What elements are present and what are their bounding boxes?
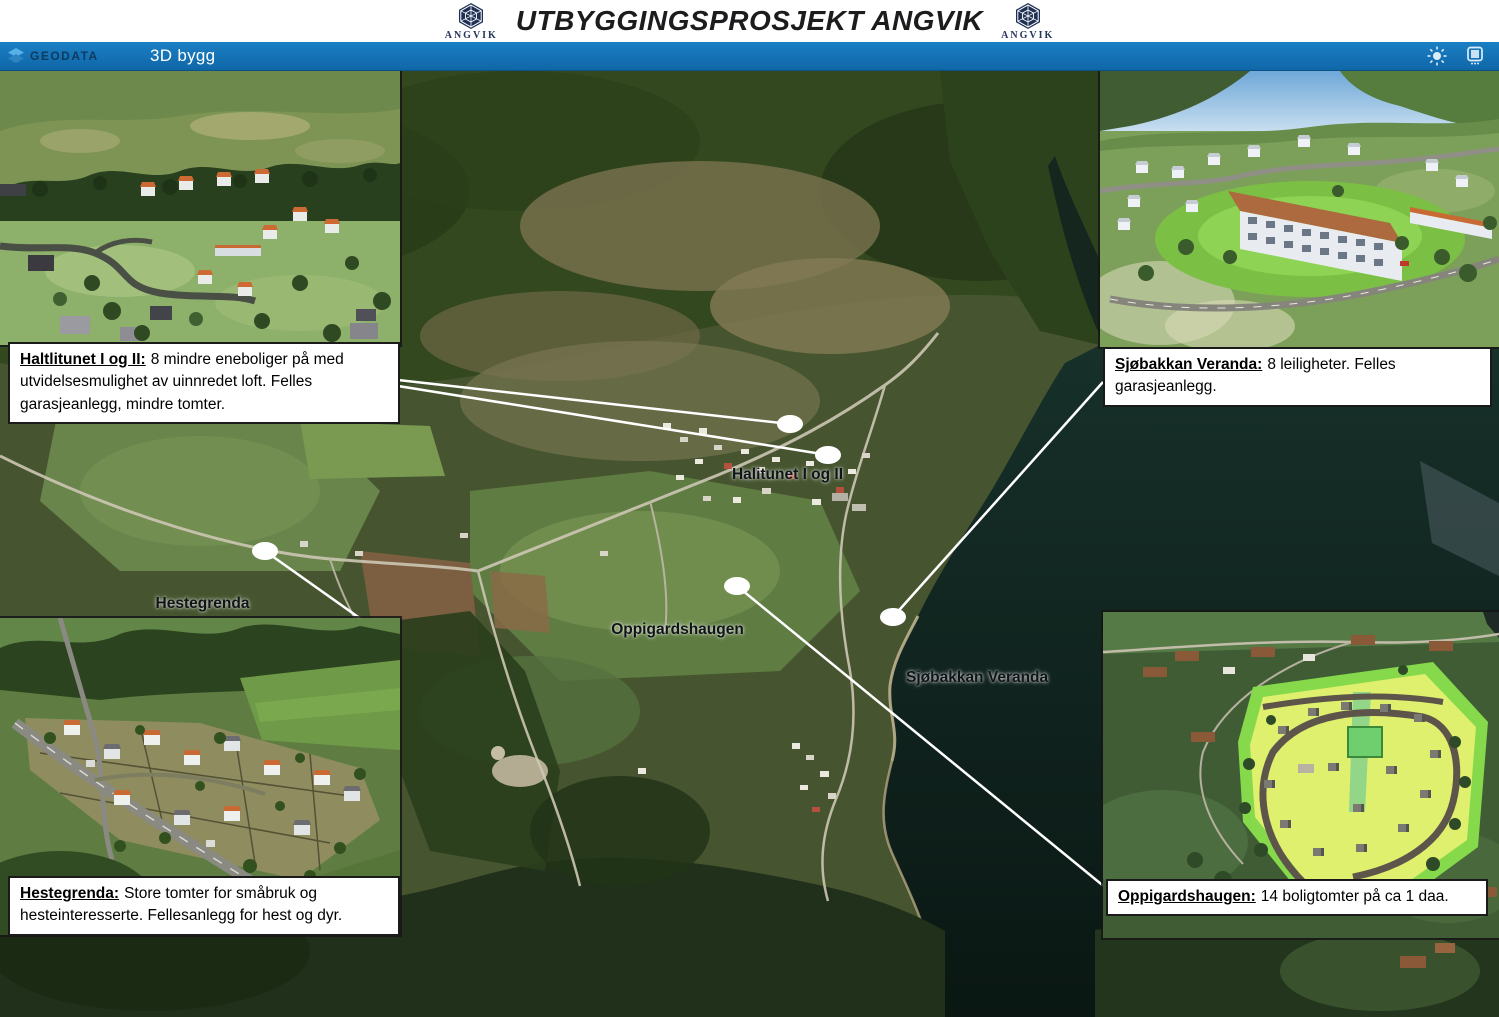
angvik-hexagon-icon — [1013, 2, 1043, 30]
caption-term-oppigardshaugen: Oppigardshaugen: — [1118, 888, 1256, 905]
toolbar-right — [1427, 46, 1485, 66]
caption-text-oppigardshaugen: 14 boligtomter på ca 1 daa. — [1261, 888, 1449, 905]
monitor-icon[interactable] — [1465, 46, 1485, 66]
caption-hestegrenda: Hestegrenda:Store tomter for småbruk og … — [8, 876, 400, 936]
caption-oppigardshaugen: Oppigardshaugen:14 boligtomter på ca 1 d… — [1106, 879, 1488, 916]
map-marker-dots — [252, 415, 906, 626]
sun-icon[interactable] — [1427, 46, 1447, 66]
caption-term-sjobakkan: Sjøbakkan Veranda: — [1115, 356, 1262, 373]
geodata-logo-text: GEODATA — [30, 49, 99, 63]
caption-term-haltlitunet: Haltlitunet I og II: — [20, 351, 146, 368]
inset-render-haltlitunet — [0, 71, 400, 345]
map-label-sjobakkan: Sjøbakkan Veranda — [906, 669, 1048, 687]
render-haltlitunet — [0, 71, 400, 345]
angvik-logo-text: ANGVIK — [1001, 31, 1054, 41]
marker-dot-hestegrenda[interactable] — [252, 542, 278, 560]
header: ANGVIK UTBYGGINGSPROSJEKT ANGVIK ANGVIK — [0, 0, 1499, 42]
app-window: ANGVIK UTBYGGINGSPROSJEKT ANGVIK ANGVIK … — [0, 0, 1499, 1017]
angvik-hexagon-icon — [456, 2, 486, 30]
caption-sjobakkan: Sjøbakkan Veranda:8 leiligheter. Felles … — [1103, 347, 1492, 407]
marker-dot-halitunet-1[interactable] — [777, 415, 803, 433]
marker-dot-halitunet-2[interactable] — [815, 446, 841, 464]
map-label-oppigardshaugen: Oppigardshaugen — [595, 621, 760, 639]
render-sjobakkan — [1100, 71, 1499, 347]
marker-dot-sjobakkan[interactable] — [880, 608, 906, 626]
caption-term-hestegrenda: Hestegrenda: — [20, 885, 119, 902]
caption-haltlitunet: Haltlitunet I og II:8 mindre eneboliger … — [8, 342, 400, 424]
angvik-logo-text: ANGVIK — [445, 31, 498, 41]
page-title: UTBYGGINGSPROSJEKT ANGVIK — [516, 5, 983, 37]
angvik-logo-left: ANGVIK — [445, 2, 498, 41]
map-label-halitunet: Halitunet I og II — [710, 466, 865, 484]
map-label-hestegrenda: Hestegrenda — [130, 595, 275, 613]
geodata-layers-icon: GEODATA — [6, 46, 122, 66]
angvik-logo-right: ANGVIK — [1001, 2, 1054, 41]
marker-dot-oppigardshaugen[interactable] — [724, 577, 750, 595]
toolbar: GEODATA 3D bygg — [0, 42, 1499, 71]
geodata-logo: GEODATA — [6, 46, 122, 66]
app-name-label: 3D bygg — [150, 46, 215, 66]
inset-render-sjobakkan — [1100, 71, 1499, 347]
